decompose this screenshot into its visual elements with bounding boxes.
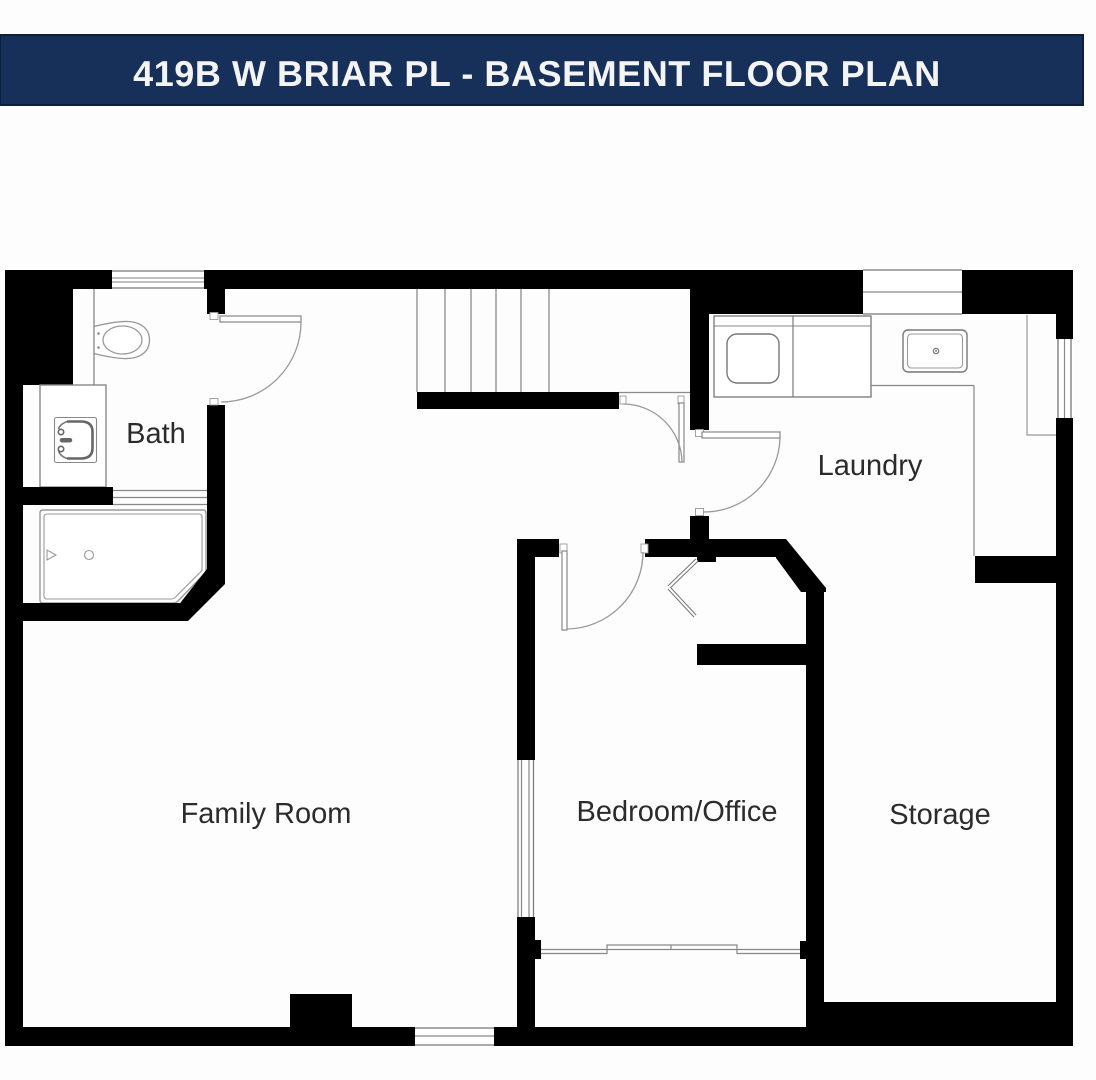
svg-text:419B W BRIAR PL - BASEMENT FLO: 419B W BRIAR PL - BASEMENT FLOOR PLAN — [133, 53, 941, 94]
svg-text:Laundry: Laundry — [818, 450, 923, 482]
svg-text:Bedroom/Office: Bedroom/Office — [577, 796, 778, 828]
svg-text:Storage: Storage — [889, 799, 991, 831]
svg-text:Bath: Bath — [126, 418, 186, 450]
svg-text:Family Room: Family Room — [181, 798, 352, 830]
